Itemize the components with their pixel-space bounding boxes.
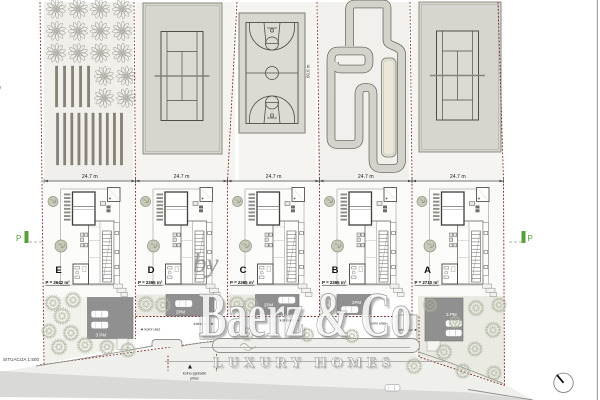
svg-text:P: P bbox=[16, 234, 21, 243]
svg-text:kolno-pješački: kolno-pješački bbox=[183, 372, 207, 376]
svg-text:P = 2642 m²: P = 2642 m² bbox=[46, 280, 71, 285]
svg-text:D: D bbox=[148, 265, 155, 276]
svg-text:e: e bbox=[0, 85, 2, 91]
svg-text:60.6 m: 60.6 m bbox=[306, 64, 311, 78]
svg-text:24.7 m: 24.7 m bbox=[358, 174, 374, 180]
svg-text:prilaz: prilaz bbox=[190, 377, 199, 381]
svg-text:3 PM: 3 PM bbox=[96, 333, 107, 338]
svg-text:E: E bbox=[55, 265, 61, 276]
svg-text:Baerz & Co: Baerz & Co bbox=[199, 279, 412, 350]
svg-text:◄ kolni ulaz: ◄ kolni ulaz bbox=[140, 328, 161, 332]
svg-text:24.7 m: 24.7 m bbox=[450, 174, 466, 180]
svg-text:SITUACIJA 1:500: SITUACIJA 1:500 bbox=[3, 357, 39, 362]
svg-text:24.7 m: 24.7 m bbox=[266, 174, 282, 180]
svg-text:2PM: 2PM bbox=[176, 310, 185, 315]
svg-text:B: B bbox=[332, 265, 339, 276]
svg-text:C: C bbox=[240, 265, 247, 276]
svg-text:by: by bbox=[193, 248, 219, 278]
svg-text:LUXURY HOMES: LUXURY HOMES bbox=[213, 354, 395, 371]
svg-text:P = 2710 m²: P = 2710 m² bbox=[415, 280, 440, 285]
svg-text:3 PM: 3 PM bbox=[446, 312, 457, 317]
svg-text:P: P bbox=[528, 234, 533, 243]
svg-text:A: A bbox=[424, 265, 431, 276]
svg-text:24.7 m: 24.7 m bbox=[174, 174, 190, 180]
svg-text:24.7 m: 24.7 m bbox=[82, 174, 98, 180]
svg-text:P = 2365 m²: P = 2365 m² bbox=[138, 280, 163, 285]
